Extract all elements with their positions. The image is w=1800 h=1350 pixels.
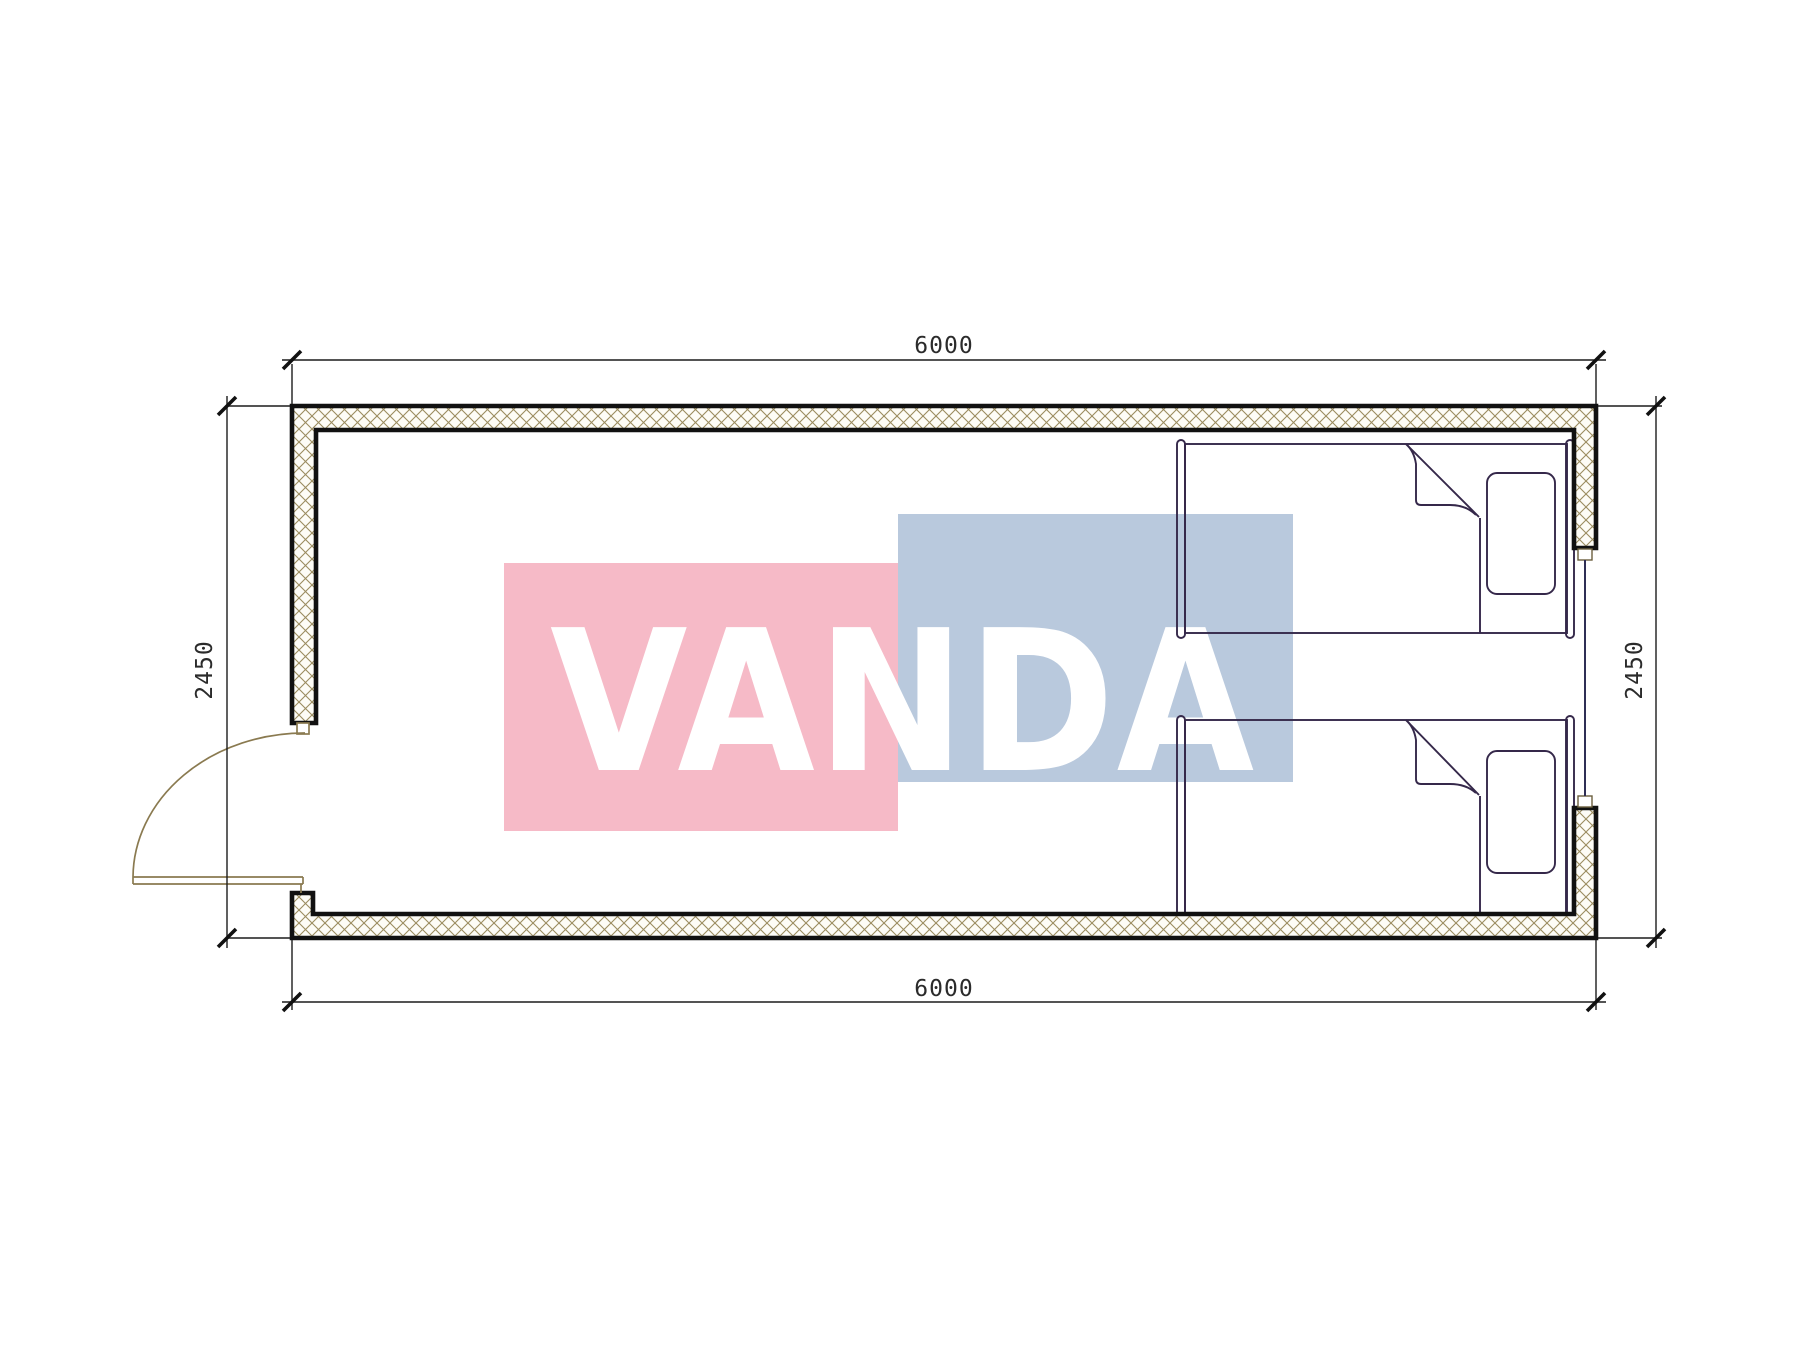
dimension-bottom: 6000: [282, 940, 1606, 1011]
wall-bottom-assembly: [292, 808, 1596, 938]
floor-plan-svg: VANDA: [0, 0, 1800, 1350]
window-jamb-top: [1578, 549, 1592, 560]
dimension-right: 2450: [1598, 396, 1665, 948]
door-leaf: [133, 877, 303, 884]
bed-bottom-pillow: [1487, 751, 1555, 873]
window-right: [1578, 549, 1592, 807]
dimension-label-top: 6000: [914, 333, 973, 359]
door-left: [133, 723, 309, 893]
dimension-top: 6000: [282, 333, 1606, 404]
floor-plan-canvas: VANDA: [0, 0, 1800, 1350]
window-jamb-bottom: [1578, 796, 1592, 807]
watermark-text: VANDA: [550, 589, 1256, 817]
dimension-label-bottom: 6000: [914, 976, 973, 1002]
door-swing-arc: [133, 733, 305, 877]
watermark-logo: VANDA: [504, 514, 1293, 831]
bed-top-pillow: [1487, 473, 1555, 594]
dimension-label-right: 2450: [1622, 640, 1648, 699]
dimension-label-left: 2450: [192, 640, 218, 699]
dimension-left: 2450: [192, 396, 290, 948]
